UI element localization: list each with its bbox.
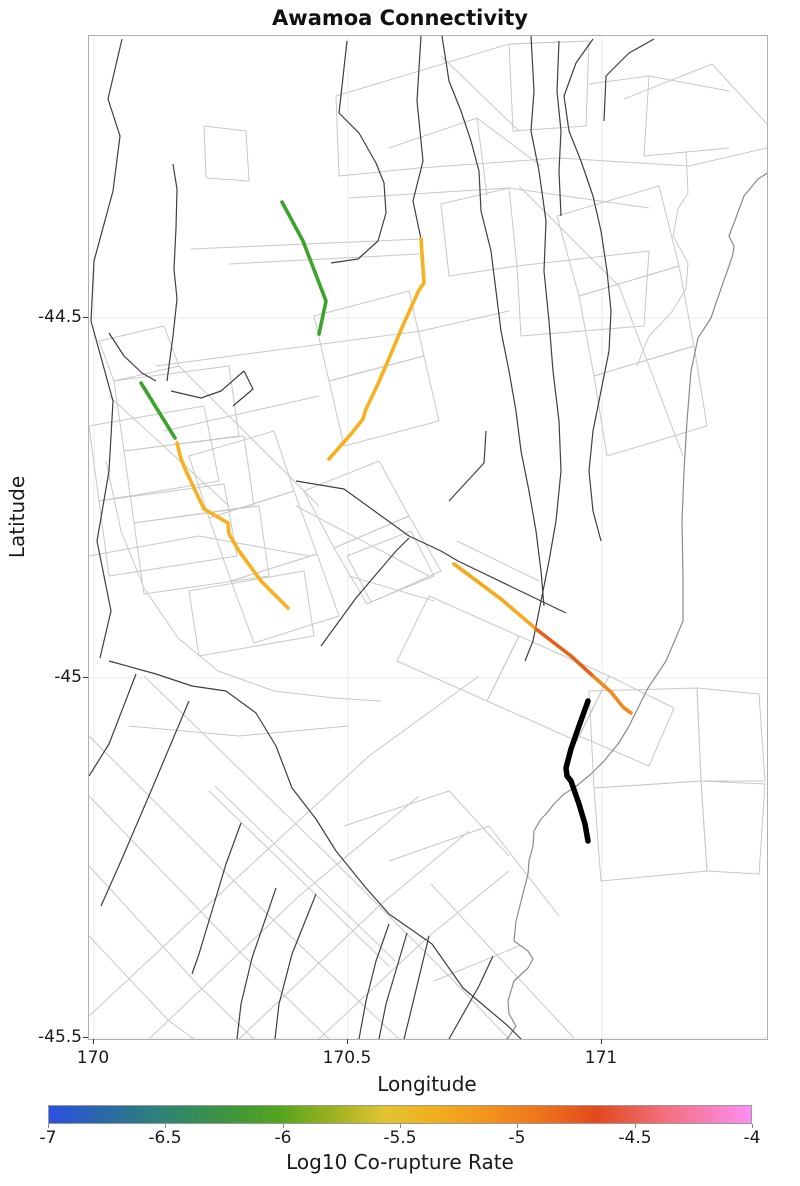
southeast-segment-red-orange-part <box>536 629 594 677</box>
map-plot <box>88 35 768 1040</box>
y-tick-mark <box>83 677 88 678</box>
colorbar <box>48 1105 752 1124</box>
fault-lines-light <box>89 41 767 1039</box>
colorbar-label: Log10 Co-rupture Rate <box>0 1150 800 1174</box>
coastline <box>506 172 767 1039</box>
colorbar-tick-label: -4.5 <box>605 1128 665 1148</box>
x-tick-label: 171 <box>561 1048 641 1068</box>
x-tick-mark <box>601 1039 602 1044</box>
y-tick-label: -45.5 <box>12 1027 82 1047</box>
figure: Awamoa Connectivity <box>0 0 800 1186</box>
colorbar-tick-label: -6.5 <box>135 1128 195 1148</box>
y-tick-mark <box>83 1037 88 1038</box>
colorbar-tick-label: -5.5 <box>370 1128 430 1148</box>
black-source-segment <box>566 701 588 841</box>
y-axis-label: Latitude <box>5 472 29 562</box>
amber-segment-central <box>329 239 424 459</box>
y-tick-mark <box>83 317 88 318</box>
y-tick-label: -44.5 <box>12 307 82 327</box>
colorbar-tick-label: -7 <box>18 1128 78 1148</box>
y-tick-label: -45 <box>12 667 82 687</box>
x-tick-label: 170 <box>53 1048 133 1068</box>
x-tick-mark <box>93 1039 94 1044</box>
colorbar-tick-label: -4 <box>722 1128 782 1148</box>
colorbar-tick-label: -5 <box>487 1128 547 1148</box>
colorbar-gradient <box>49 1106 751 1123</box>
plot-title: Awamoa Connectivity <box>0 6 800 30</box>
colorbar-tick-label: -6 <box>253 1128 313 1148</box>
x-tick-mark <box>347 1039 348 1044</box>
x-axis-label: Longitude <box>0 1072 800 1096</box>
fault-lines-dark <box>89 36 654 1039</box>
x-tick-label: 170.5 <box>307 1048 387 1068</box>
fault-map-svg <box>89 36 767 1039</box>
